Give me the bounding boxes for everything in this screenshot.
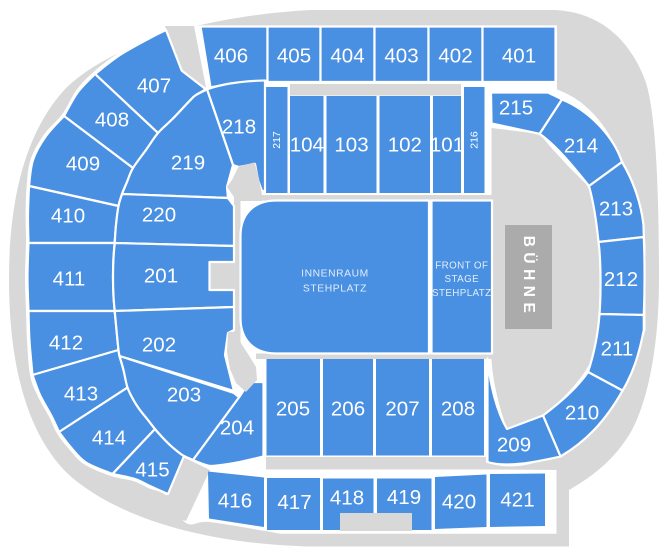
svg-text:208: 208 [441,398,475,421]
svg-text:402: 402 [438,45,472,68]
svg-text:211: 211 [601,338,634,361]
svg-text:203: 203 [167,384,201,407]
svg-text:STAGE: STAGE [445,274,480,285]
svg-text:418: 418 [330,487,364,510]
svg-text:215: 215 [499,97,533,120]
svg-text:413: 413 [64,383,98,406]
svg-text:STEHPLATZ: STEHPLATZ [303,284,367,295]
svg-text:214: 214 [564,135,598,158]
svg-text:204: 204 [220,417,254,440]
svg-text:403: 403 [384,45,418,68]
svg-text:407: 407 [137,75,171,98]
svg-text:BÜHNE: BÜHNE [520,236,537,319]
svg-text:414: 414 [92,427,126,450]
svg-text:INNENRAUM: INNENRAUM [301,269,369,280]
svg-text:420: 420 [442,491,476,514]
svg-text:401: 401 [502,45,536,68]
svg-text:104: 104 [290,134,324,157]
svg-text:206: 206 [331,398,365,421]
svg-text:210: 210 [565,402,599,425]
svg-text:FRONT OF: FRONT OF [435,261,488,272]
svg-text:102: 102 [388,134,422,157]
svg-text:218: 218 [222,116,256,139]
svg-text:202: 202 [142,334,176,357]
svg-text:205: 205 [276,398,310,421]
svg-text:412: 412 [49,332,83,355]
svg-text:404: 404 [330,45,364,68]
svg-text:209: 209 [497,434,531,457]
svg-text:416: 416 [218,490,252,513]
svg-text:406: 406 [214,45,248,68]
svg-text:101: 101 [430,134,464,157]
svg-text:411: 411 [53,268,86,291]
svg-text:421: 421 [500,489,534,512]
svg-text:220: 220 [142,204,176,227]
svg-text:409: 409 [66,153,100,176]
svg-text:216: 216 [468,131,480,149]
svg-text:207: 207 [385,398,419,421]
svg-text:219: 219 [171,152,205,175]
svg-text:405: 405 [277,45,311,68]
svg-text:STEHPLATZ: STEHPLATZ [432,288,492,299]
svg-text:212: 212 [604,268,638,291]
svg-text:217: 217 [271,131,283,149]
svg-text:415: 415 [135,459,169,482]
svg-text:419: 419 [387,486,421,509]
svg-text:213: 213 [599,198,633,221]
svg-text:103: 103 [334,134,368,157]
svg-text:417: 417 [277,491,311,514]
svg-text:201: 201 [144,265,178,288]
svg-text:408: 408 [95,109,129,132]
svg-text:410: 410 [51,205,85,228]
